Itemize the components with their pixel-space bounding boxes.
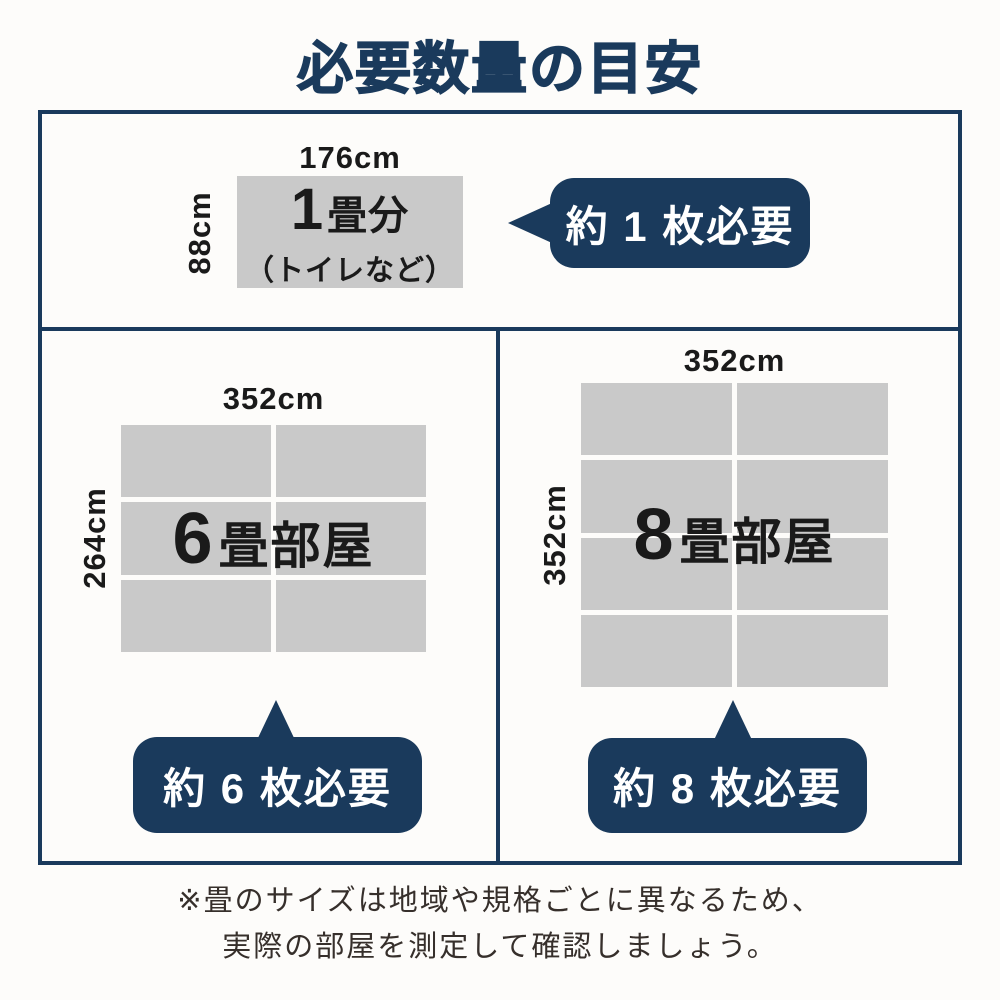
bottom-sections: 352cm 264cm 6 畳部屋 約 6 枚必要 352cm 352cm bbox=[42, 331, 958, 861]
six-mat-height-label: 264cm bbox=[77, 487, 113, 589]
one-mat-rectangle: 1 畳分 （トイレなど） bbox=[237, 176, 463, 288]
six-mat-width-label: 352cm bbox=[121, 381, 426, 417]
section-six-mat: 352cm 264cm 6 畳部屋 約 6 枚必要 bbox=[42, 331, 500, 861]
tatami-cell bbox=[276, 580, 426, 652]
one-mat-number: 1 bbox=[291, 176, 323, 243]
tatami-cell bbox=[581, 383, 732, 455]
tatami-cell bbox=[581, 615, 732, 687]
callout-tail-left-icon bbox=[508, 203, 552, 243]
one-mat-suffix: 畳分 bbox=[327, 183, 409, 241]
tatami-cell bbox=[581, 538, 732, 610]
tatami-cell bbox=[581, 460, 732, 532]
eight-mat-width-label: 352cm bbox=[581, 343, 888, 379]
one-mat-callout-text: 約 1 枚必要 bbox=[566, 193, 795, 254]
tatami-cell bbox=[121, 502, 271, 574]
tatami-cell bbox=[737, 383, 888, 455]
tatami-cell bbox=[276, 425, 426, 497]
one-mat-width-label: 176cm bbox=[237, 140, 463, 176]
tatami-cell bbox=[737, 615, 888, 687]
page-title: 必要数量の目安 bbox=[0, 24, 1000, 105]
diagram-frame: 176cm 88cm 1 畳分 （トイレなど） 約 1 枚必要 352cm 26… bbox=[38, 110, 962, 865]
six-mat-callout-text: 約 6 枚必要 bbox=[163, 755, 392, 816]
six-mat-callout: 約 6 枚必要 bbox=[133, 737, 422, 833]
one-mat-callout: 約 1 枚必要 bbox=[550, 178, 810, 268]
infographic-page: 必要数量の目安 176cm 88cm 1 畳分 （トイレなど） 約 1 枚必要 … bbox=[0, 0, 1000, 1000]
eight-mat-callout-text: 約 8 枚必要 bbox=[613, 755, 842, 816]
tatami-cell bbox=[737, 538, 888, 610]
section-one-mat: 176cm 88cm 1 畳分 （トイレなど） 約 1 枚必要 bbox=[42, 114, 958, 331]
footer-note: ※畳のサイズは地域や規格ごとに異なるため、 実際の部屋を測定して確認しましょう。 bbox=[0, 878, 1000, 970]
callout-tail-up-icon bbox=[714, 700, 752, 740]
footer-note-line1: ※畳のサイズは地域や規格ごとに異なるため、 bbox=[0, 878, 1000, 924]
tatami-cell bbox=[121, 580, 271, 652]
footer-note-line2: 実際の部屋を測定して確認しましょう。 bbox=[0, 924, 1000, 970]
section-eight-mat: 352cm 352cm 8 畳部屋 約 8 枚必要 bbox=[500, 331, 958, 861]
one-mat-note: （トイレなど） bbox=[245, 247, 455, 289]
eight-mat-height-label: 352cm bbox=[537, 484, 573, 586]
tatami-cell bbox=[737, 460, 888, 532]
eight-mat-grid bbox=[581, 383, 888, 687]
tatami-cell bbox=[121, 425, 271, 497]
callout-tail-up-icon bbox=[257, 700, 295, 740]
six-mat-grid bbox=[121, 425, 426, 652]
tatami-cell bbox=[276, 502, 426, 574]
one-mat-name: 1 畳分 bbox=[291, 176, 409, 243]
eight-mat-callout: 約 8 枚必要 bbox=[588, 738, 867, 833]
one-mat-height-label: 88cm bbox=[182, 191, 218, 274]
